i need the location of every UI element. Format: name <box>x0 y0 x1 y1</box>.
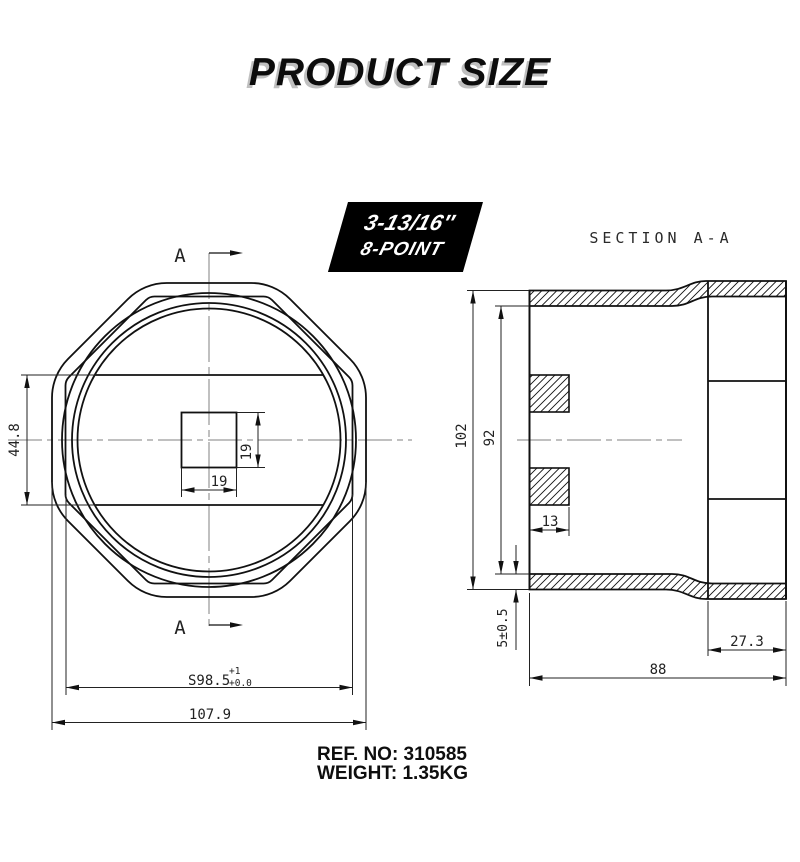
technical-drawing: 44.8 19 19 S98.5 +1 +0.0 107.9 A A 102 9… <box>0 0 800 862</box>
dim-13: 13 <box>542 514 559 530</box>
dim-5-tol: 5±0.5 <box>496 608 511 647</box>
drive-boss-upper <box>530 375 570 412</box>
section-broach-lines <box>708 381 786 499</box>
drive-boss-lower <box>530 468 570 505</box>
dim-44-8: 44.8 <box>7 423 23 457</box>
section-marker-bottom: A <box>174 617 186 639</box>
section-top-wall <box>530 281 787 306</box>
footer-info: REF. NO: 310585 WEIGHT: 1.35KG <box>317 745 468 783</box>
dimension-lines <box>21 291 786 731</box>
dim-88: 88 <box>650 662 667 678</box>
dim-19-horizontal: 19 <box>211 474 228 490</box>
dim-s98-5-tol-lower: +0.0 <box>229 678 252 689</box>
dim-107-9: 107.9 <box>189 707 231 723</box>
dimension-texts: 44.8 19 19 S98.5 +1 +0.0 107.9 A A 102 9… <box>7 245 764 723</box>
ref-no-text: REF. NO: 310585 <box>317 745 468 764</box>
dim-27-3: 27.3 <box>730 634 764 650</box>
dim-s98-5-tol-upper: +1 <box>229 666 241 677</box>
dim-102: 102 <box>454 423 470 448</box>
page: { "title": "PRODUCT SIZE", "badge": { "l… <box>0 0 800 862</box>
dim-19-vertical: 19 <box>239 444 255 461</box>
section-marker-top: A <box>174 245 186 267</box>
weight-text: WEIGHT: 1.35KG <box>317 764 468 783</box>
dim-s98-5: S98.5 <box>188 673 230 689</box>
centerlines <box>8 253 682 628</box>
dim-92: 92 <box>482 430 498 447</box>
section-bottom-wall <box>530 574 787 599</box>
